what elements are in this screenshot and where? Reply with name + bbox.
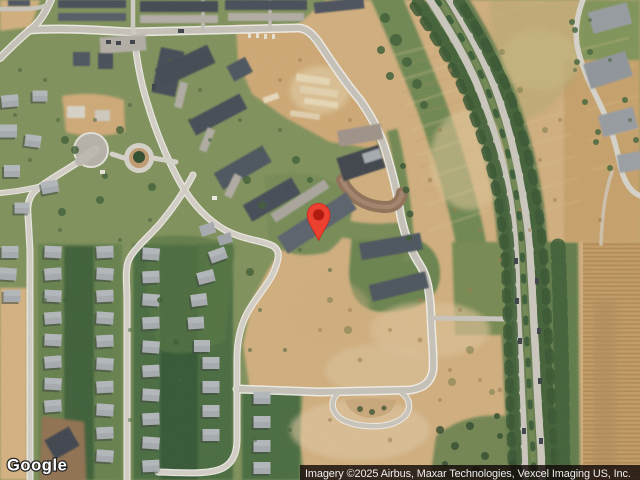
svg-text:Imagery ©2025 Airbus, Maxar Te: Imagery ©2025 Airbus, Maxar Technologies… [305, 468, 631, 480]
svg-text:Google: Google [7, 457, 67, 475]
